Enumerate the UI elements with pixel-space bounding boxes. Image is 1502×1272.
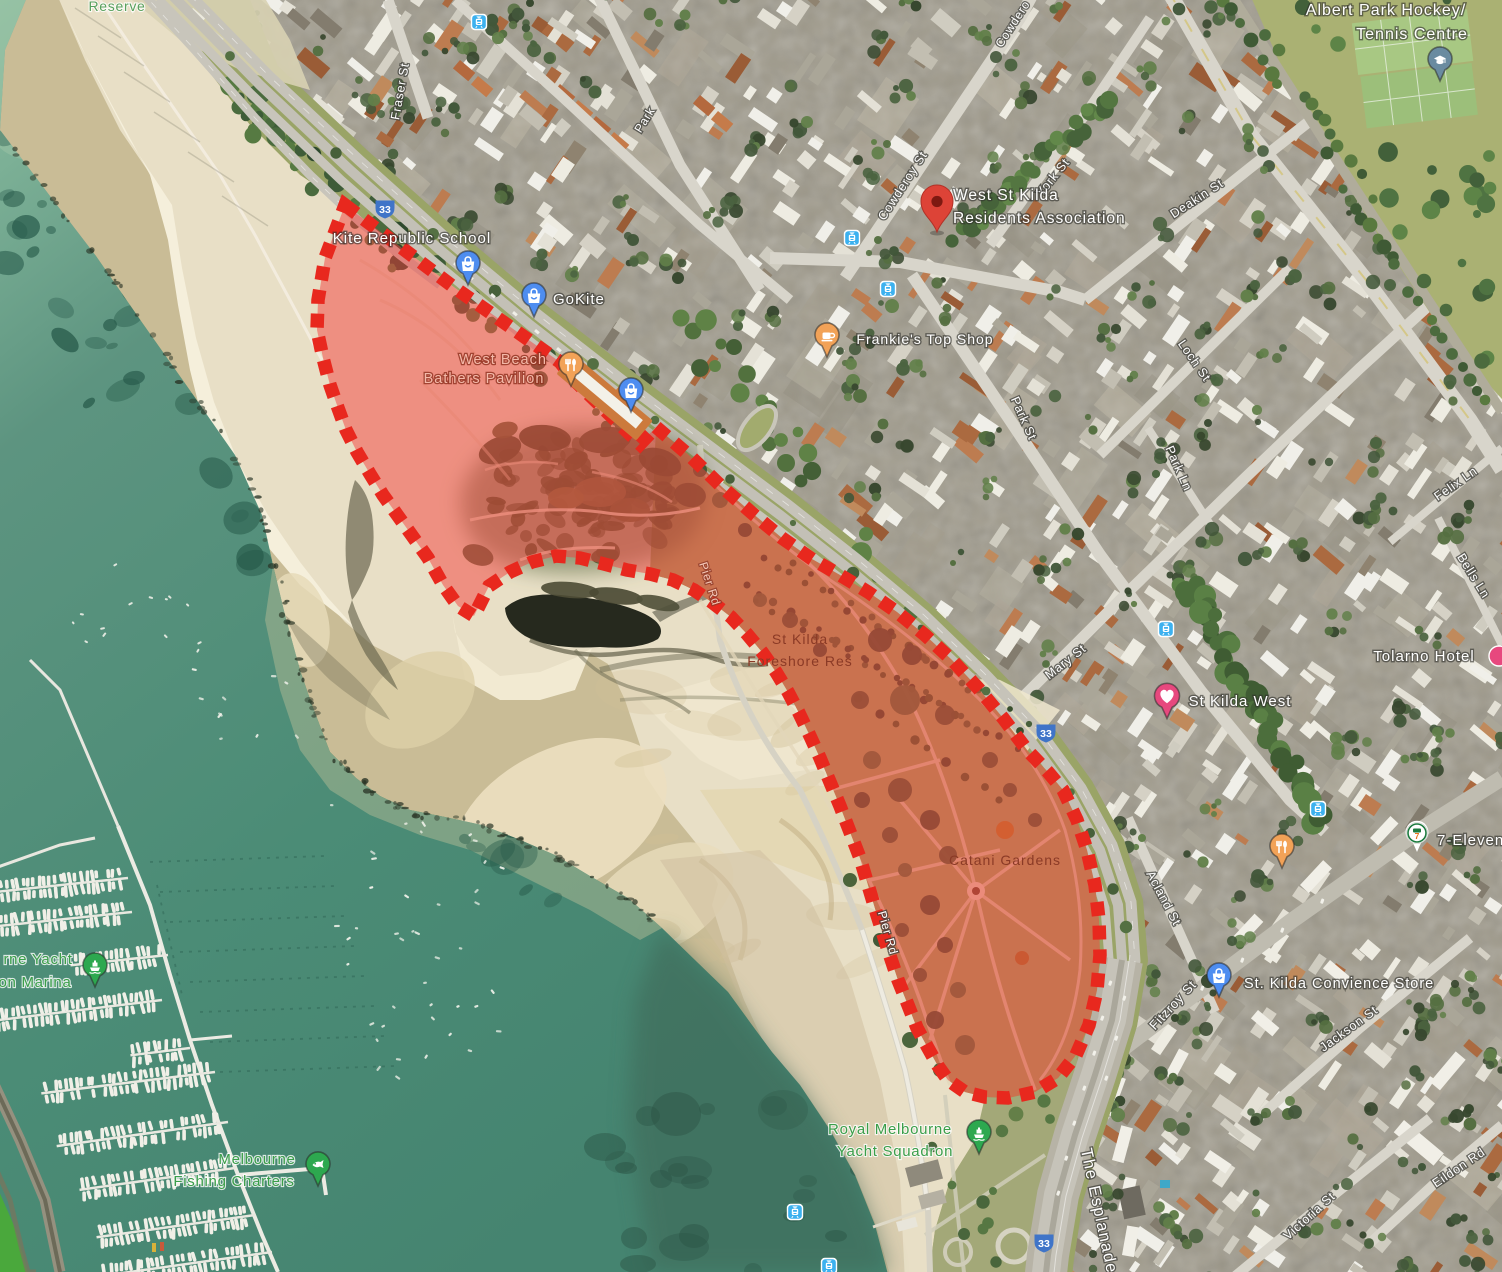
svg-text:rne Yacht: rne Yacht xyxy=(3,951,72,968)
svg-text:Fishing Charters: Fishing Charters xyxy=(173,1173,294,1190)
svg-text:Bathers Pavilion: Bathers Pavilion xyxy=(424,371,545,387)
svg-text:West St Kilda: West St Kilda xyxy=(953,187,1059,204)
svg-text:7: 7 xyxy=(1415,831,1420,841)
svg-text:Royal Melbourne: Royal Melbourne xyxy=(828,1121,952,1138)
svg-text:Frankie's Top Shop: Frankie's Top Shop xyxy=(856,331,993,347)
svg-text:Kite Republic School: Kite Republic School xyxy=(333,230,491,247)
svg-text:Yacht Squadron: Yacht Squadron xyxy=(837,1143,953,1160)
svg-text:GoKite: GoKite xyxy=(553,291,605,308)
svg-text:7-Eleven: 7-Eleven xyxy=(1437,832,1502,849)
svg-text:33: 33 xyxy=(379,204,391,216)
svg-text:Tolarno Hotel: Tolarno Hotel xyxy=(1373,648,1474,665)
svg-text:West Beach: West Beach xyxy=(459,352,547,368)
svg-text:Foreshore Res: Foreshore Res xyxy=(747,653,853,669)
svg-text:Residents Association: Residents Association xyxy=(953,210,1126,227)
svg-text:33: 33 xyxy=(1040,728,1052,740)
svg-text:Albert Park Hockey/: Albert Park Hockey/ xyxy=(1306,2,1466,19)
svg-text:33: 33 xyxy=(1038,1238,1050,1250)
svg-text:on Marina: on Marina xyxy=(0,974,72,991)
svg-text:Tennis Centre: Tennis Centre xyxy=(1356,26,1468,43)
svg-text:Catani Gardens: Catani Gardens xyxy=(949,852,1061,868)
svg-text:St Kilda: St Kilda xyxy=(772,631,828,647)
svg-text:St. Kilda Convience Store: St. Kilda Convience Store xyxy=(1244,976,1434,992)
svg-text:St Kilda West: St Kilda West xyxy=(1189,693,1292,710)
svg-text:Melbourne: Melbourne xyxy=(218,1151,295,1168)
svg-text:Reserve: Reserve xyxy=(88,0,145,14)
